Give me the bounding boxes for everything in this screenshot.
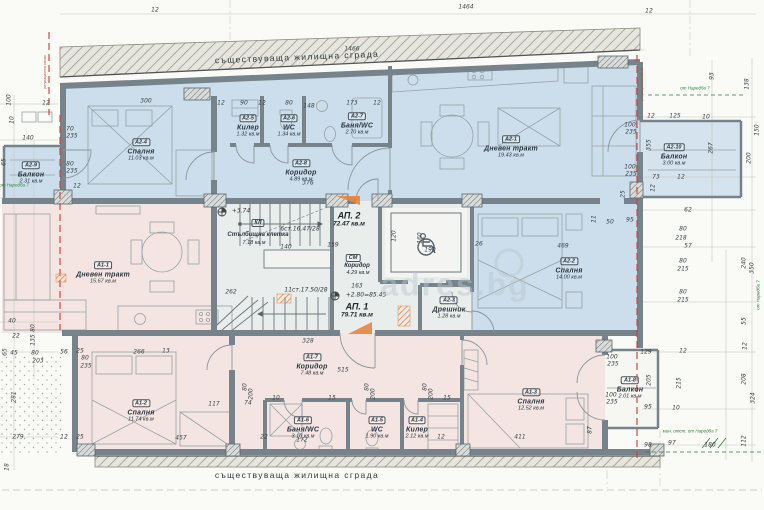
floor-plan: съществуваща жилищна сграда съществуваща… (0, 0, 764, 510)
elevator (385, 208, 467, 277)
neighbor-ground-texture (0, 355, 62, 455)
existing-building-strip-bottom (95, 456, 660, 467)
floor-plan-drawing (0, 0, 764, 510)
